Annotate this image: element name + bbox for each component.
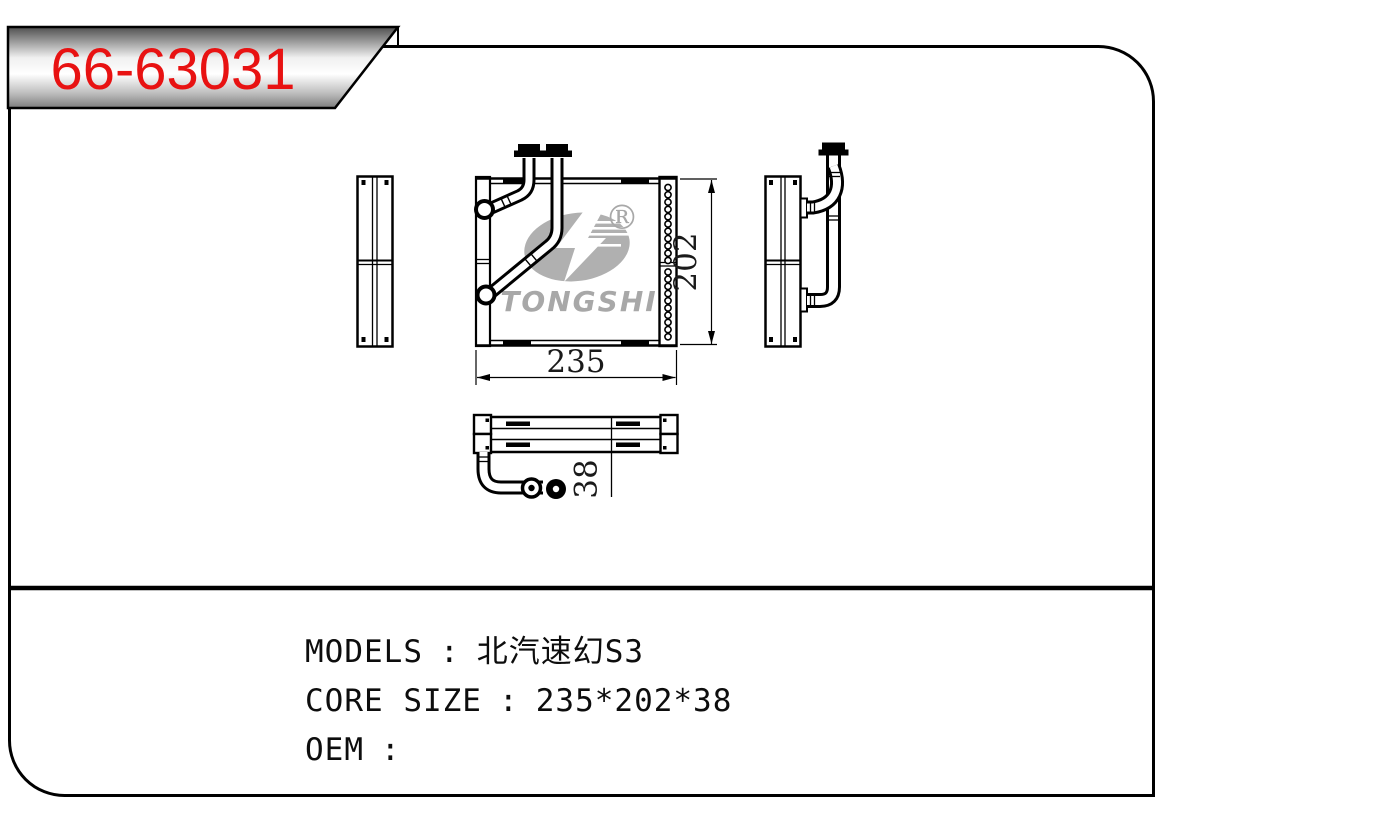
core-size-label: CORE SIZE [305,683,482,719]
pipe-fittings [523,479,567,499]
pipe-cap [819,143,849,156]
side-pipe [807,154,840,306]
models-separator: : [440,634,460,670]
oem-separator: : [381,732,401,768]
catalog-sheet: 66-63031 ® TONGSHI [0,0,1399,815]
models-value: 北汽速幻S3 [477,634,644,670]
core-size-value: 235*202*38 [536,683,733,719]
models-row: MODELS:北汽速幻S3 [305,628,732,677]
oem-label: OEM [305,732,364,768]
core-size-separator: : [499,683,519,719]
brand-name: TONGSHI [500,285,657,318]
right-side-view [766,143,849,347]
pipe-caps [514,144,572,157]
top-view: 38 [474,415,678,499]
registered-mark: ® [605,198,639,238]
depth-value: 38 [569,459,605,498]
core-size-row: CORE SIZE:235*202*38 [305,677,732,726]
cap-marks [486,419,667,450]
pipe-ports [476,201,495,304]
spec-panel: MODELS:北汽速幻S3 CORE SIZE:235*202*38 OEM: [305,628,732,775]
part-number: 66-63031 [50,37,295,102]
height-value: 202 [668,232,704,291]
part-number-badge: 66-63031 [8,27,398,108]
width-value: 235 [546,344,605,380]
end-caps [474,415,678,453]
oem-row: OEM: [305,726,732,775]
models-label: MODELS [305,634,423,670]
left-side-view [358,177,393,347]
